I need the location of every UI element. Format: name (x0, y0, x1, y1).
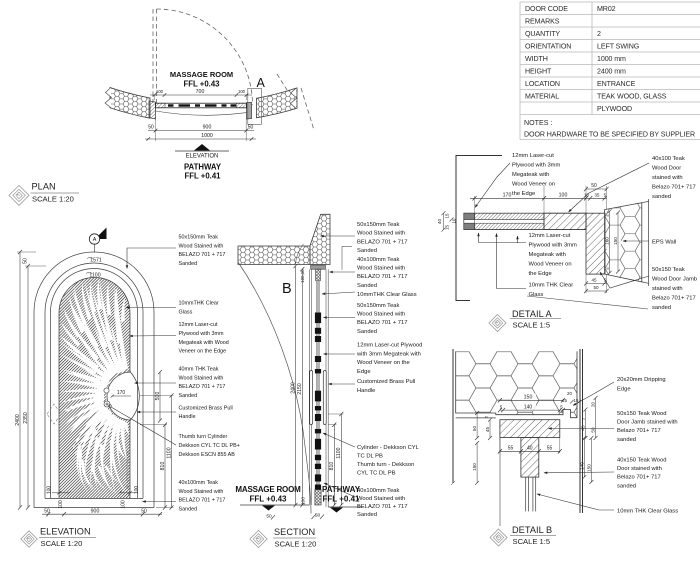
svg-text:1100: 1100 (336, 447, 342, 458)
svg-text:Wood Veneer on: Wood Veneer on (512, 182, 555, 188)
svg-text:2350: 2350 (23, 412, 29, 424)
svg-text:SCALE 1:5: SCALE 1:5 (513, 321, 551, 330)
svg-text:BELAZO 701 + 717: BELAZO 701 + 717 (179, 498, 226, 504)
svg-text:SCALE 1:20: SCALE 1:20 (275, 540, 317, 549)
svg-text:Wood Stained with: Wood Stained with (179, 243, 224, 249)
svg-text:FFL +0.43: FFL +0.43 (183, 80, 220, 89)
svg-text:Dekkson CYL TC DL PB+: Dekkson CYL TC DL PB+ (179, 443, 240, 449)
svg-text:150: 150 (586, 464, 591, 472)
svg-text:BELAZO 701+717 SANDED: BELAZO 701+717 SANDED (125, 450, 129, 489)
svg-text:1100: 1100 (167, 447, 173, 458)
svg-text:REMARKS: REMARKS (525, 18, 560, 26)
svg-text:40x100mm Teak: 40x100mm Teak (357, 488, 400, 494)
svg-text:Belazo 701+ 717: Belazo 701+ 717 (652, 296, 696, 302)
svg-text:10mmTHK Clear Glass: 10mmTHK Clear Glass (357, 292, 417, 298)
svg-text:the Edge: the Edge (529, 271, 552, 277)
svg-text:Wood Veneer on the: Wood Veneer on the (357, 360, 410, 366)
svg-text:Customized Brass Pull: Customized Brass Pull (179, 405, 233, 411)
svg-text:Wood Door Jamb: Wood Door Jamb (652, 277, 697, 283)
svg-text:Sanded: Sanded (357, 283, 377, 289)
svg-text:BELAZO 701 + 717: BELAZO 701 + 717 (357, 320, 407, 326)
svg-text:DOOR CODE: DOOR CODE (525, 5, 568, 13)
svg-text:100: 100 (47, 486, 53, 495)
svg-text:Wood Stained with: Wood Stained with (357, 496, 405, 502)
svg-text:FFL +0.41: FFL +0.41 (184, 172, 221, 181)
svg-text:Megateak with Wood: Megateak with Wood (179, 340, 229, 346)
svg-text:sanded: sanded (652, 194, 671, 200)
svg-text:12mm Laser-cut: 12mm Laser-cut (512, 153, 554, 159)
svg-text:Plywood with 3mm: Plywood with 3mm (529, 243, 577, 249)
svg-text:Cylinder - Dekkson CYL: Cylinder - Dekkson CYL (357, 445, 420, 451)
svg-text:810: 810 (160, 462, 166, 471)
svg-text:40mm THK Teak: 40mm THK Teak (179, 367, 219, 373)
svg-text:500: 500 (155, 392, 161, 401)
svg-text:B: B (282, 281, 292, 297)
svg-text:2: 2 (597, 30, 601, 38)
svg-text:55: 55 (508, 446, 514, 452)
svg-text:Wood Stained with: Wood Stained with (357, 266, 405, 272)
svg-text:40x100mm Teak: 40x100mm Teak (357, 257, 400, 263)
svg-text:Sanded: Sanded (357, 512, 377, 518)
svg-text:900: 900 (91, 508, 100, 514)
svg-text:SCALE 1:5: SCALE 1:5 (513, 537, 551, 546)
svg-text:Sanded: Sanded (179, 261, 198, 267)
svg-text:DETAIL A: DETAIL A (512, 309, 553, 319)
svg-text:with 3mm Megateak with: with 3mm Megateak with (356, 351, 421, 357)
svg-text:MR02: MR02 (597, 5, 616, 13)
svg-text:20x20mm Dripping: 20x20mm Dripping (617, 377, 666, 383)
svg-text:MASSAGE ROOM: MASSAGE ROOM (235, 485, 301, 494)
svg-text:Thumb turn Cylinder: Thumb turn Cylinder (179, 434, 228, 440)
svg-text:170: 170 (503, 193, 512, 199)
svg-text:Veneer on the Edge: Veneer on the Edge (179, 349, 227, 355)
svg-text:150: 150 (613, 237, 618, 245)
svg-text:DETAIL B: DETAIL B (512, 525, 552, 535)
svg-text:BELAZO 701 + 717: BELAZO 701 + 717 (179, 384, 226, 390)
svg-text:ELEVATION: ELEVATION (186, 154, 219, 160)
svg-text:FFL +0.43: FFL +0.43 (250, 495, 288, 504)
svg-text:10mmTHK Clear: 10mmTHK Clear (179, 301, 219, 307)
svg-text:EPS Wall: EPS Wall (652, 240, 676, 246)
svg-text:170: 170 (117, 390, 126, 396)
svg-text:SCALE 1:20: SCALE 1:20 (32, 195, 74, 204)
svg-text:Plywood with 3mm: Plywood with 3mm (179, 331, 224, 337)
svg-text:15: 15 (445, 225, 450, 230)
svg-text:Sanded: Sanded (179, 506, 198, 512)
svg-text:10mm THK Clear Glass: 10mm THK Clear Glass (617, 509, 678, 515)
svg-text:TC DL PB: TC DL PB (357, 454, 383, 460)
svg-text:Belazo 701+ 717: Belazo 701+ 717 (617, 475, 661, 481)
svg-text:Wood Stained with: Wood Stained with (179, 375, 224, 381)
svg-text:Door Jamb stained with: Door Jamb stained with (617, 420, 678, 426)
svg-text:45: 45 (591, 278, 597, 283)
svg-text:PLYWOOD: PLYWOOD (597, 105, 632, 113)
svg-text:BELAZO 701 + 717: BELAZO 701 + 717 (357, 274, 407, 280)
svg-text:ELEVATION: ELEVATION (40, 527, 91, 537)
svg-text:BELAZO 701 + 717: BELAZO 701 + 717 (179, 252, 226, 258)
svg-text:140: 140 (579, 462, 584, 470)
svg-text:100: 100 (58, 500, 64, 509)
svg-text:160: 160 (605, 237, 610, 245)
svg-text:Edge: Edge (617, 387, 631, 393)
svg-text:10mm THK Clear: 10mm THK Clear (529, 283, 574, 289)
svg-text:100: 100 (121, 500, 127, 509)
svg-text:Megateak with: Megateak with (512, 172, 549, 178)
svg-text:PLAN: PLAN (32, 182, 56, 192)
svg-text:A: A (257, 76, 266, 90)
svg-text:12mm Laser-cut: 12mm Laser-cut (529, 233, 571, 239)
svg-text:Wood Stained with: Wood Stained with (357, 312, 405, 318)
svg-text:700: 700 (196, 89, 205, 95)
svg-text:Belazo 701+ 717: Belazo 701+ 717 (652, 185, 696, 191)
svg-text:DOOR HARDWARE TO BE SPECIFIED: DOOR HARDWARE TO BE SPECIFIED BY SUPPLIE… (524, 131, 695, 139)
svg-text:Thumb turn - Dekkson: Thumb turn - Dekkson (357, 462, 414, 468)
svg-text:Door stained with: Door stained with (617, 466, 662, 472)
svg-text:45: 45 (485, 427, 490, 433)
svg-text:50: 50 (266, 514, 272, 520)
svg-text:15: 15 (562, 398, 567, 403)
svg-text:WIDTH: WIDTH (525, 55, 548, 63)
svg-text:900: 900 (203, 125, 212, 131)
svg-text:Handle: Handle (179, 414, 196, 420)
svg-text:100: 100 (156, 89, 164, 94)
svg-text:MASSAGE ROOM: MASSAGE ROOM (170, 70, 233, 79)
svg-text:50: 50 (591, 427, 596, 433)
svg-text:15: 15 (445, 213, 450, 218)
svg-text:BELAZO 701 + 717: BELAZO 701 + 717 (357, 504, 407, 510)
svg-text:1571: 1571 (90, 258, 102, 264)
svg-text:50x150 Teak Wood: 50x150 Teak Wood (617, 411, 666, 417)
svg-text:sanded: sanded (617, 483, 636, 489)
svg-text:LEFT SWING: LEFT SWING (597, 43, 639, 51)
svg-text:ORIENTATION: ORIENTATION (525, 43, 571, 51)
svg-text:50: 50 (248, 125, 254, 131)
svg-text:A: A (93, 237, 97, 243)
svg-text:1000 mm: 1000 mm (597, 55, 626, 63)
svg-text:100: 100 (238, 89, 246, 94)
svg-text:Wood Door: Wood Door (652, 166, 681, 172)
svg-text:ENTRANCE: ENTRANCE (597, 80, 636, 88)
svg-text:stained with: stained with (652, 175, 683, 181)
svg-text:50x150mm Teak: 50x150mm Teak (357, 222, 400, 228)
svg-text:150: 150 (524, 395, 533, 401)
svg-text:50x150mm Teak: 50x150mm Teak (179, 235, 219, 241)
svg-text:40x100 Teak: 40x100 Teak (652, 156, 685, 162)
svg-text:35: 35 (595, 193, 600, 198)
svg-text:150: 150 (472, 463, 477, 471)
svg-text:40: 40 (437, 219, 442, 225)
svg-text:12mm Laser-cut Plywood: 12mm Laser-cut Plywood (357, 343, 422, 349)
svg-text:Handle: Handle (357, 388, 375, 394)
svg-text:50: 50 (148, 125, 154, 131)
svg-text:50: 50 (593, 285, 599, 290)
svg-text:50: 50 (591, 183, 597, 189)
svg-text:2400: 2400 (290, 382, 296, 394)
svg-text:40x100mm Teak: 40x100mm Teak (179, 480, 219, 486)
svg-text:Sanded: Sanded (357, 248, 377, 254)
svg-text:LOCATION: LOCATION (525, 80, 560, 88)
svg-text:NOTES :: NOTES : (524, 119, 552, 127)
svg-text:40: 40 (527, 446, 533, 452)
svg-text:2400: 2400 (15, 414, 21, 426)
svg-text:SECTION: SECTION (274, 527, 315, 537)
svg-text:Megateak with: Megateak with (529, 252, 566, 258)
svg-text:TEAK WOOD, GLASS: TEAK WOOD, GLASS (597, 93, 667, 101)
svg-text:45: 45 (581, 425, 586, 431)
svg-text:HEIGHT: HEIGHT (525, 68, 552, 76)
svg-text:BELAZO 701 + 717: BELAZO 701 + 717 (357, 239, 407, 245)
svg-text:Plywood with 3mm: Plywood with 3mm (512, 163, 560, 169)
svg-text:Wood Veneer on: Wood Veneer on (529, 262, 572, 268)
svg-text:20: 20 (591, 402, 596, 407)
svg-text:stained with: stained with (652, 286, 683, 292)
svg-text:Glass: Glass (529, 292, 544, 298)
svg-text:sanded: sanded (652, 305, 671, 311)
svg-text:Customized Brass Pull: Customized Brass Pull (357, 379, 415, 385)
svg-text:12mm Laser-cut: 12mm Laser-cut (179, 322, 218, 328)
svg-text:2150: 2150 (297, 383, 303, 395)
svg-text:the Edge: the Edge (512, 191, 535, 197)
svg-text:Glass: Glass (179, 309, 193, 315)
svg-text:Dekkson ESCN 855 AB: Dekkson ESCN 855 AB (179, 452, 236, 458)
svg-text:50: 50 (23, 258, 29, 264)
svg-text:sanded: sanded (617, 437, 636, 443)
svg-text:20: 20 (567, 391, 572, 396)
svg-text:Wood Stained with: Wood Stained with (357, 231, 405, 237)
svg-text:140: 140 (524, 404, 533, 410)
svg-text:100: 100 (559, 193, 568, 199)
svg-text:Belazo 701+ 717: Belazo 701+ 717 (617, 428, 661, 434)
svg-text:QUANTITY: QUANTITY (525, 30, 560, 38)
svg-text:50: 50 (141, 508, 147, 514)
svg-text:CYL TC DL PB: CYL TC DL PB (357, 470, 396, 476)
svg-text:50: 50 (472, 426, 477, 432)
svg-text:50: 50 (315, 513, 321, 519)
svg-text:2400 mm: 2400 mm (597, 68, 626, 76)
svg-text:MATERIAL: MATERIAL (525, 93, 559, 101)
svg-text:40x150 Teak Wood: 40x150 Teak Wood (617, 458, 666, 464)
svg-text:50: 50 (44, 508, 50, 514)
svg-text:Sanded: Sanded (357, 329, 377, 335)
svg-text:1000: 1000 (201, 133, 213, 139)
svg-text:Edge: Edge (357, 369, 371, 375)
svg-text:Wood Stained with: Wood Stained with (179, 489, 224, 495)
svg-text:810: 810 (329, 462, 335, 471)
svg-text:Sanded: Sanded (179, 393, 198, 399)
svg-text:PATHWAY: PATHWAY (184, 163, 222, 172)
svg-text:50x150 Teak: 50x150 Teak (652, 267, 685, 273)
svg-text:55: 55 (547, 446, 553, 452)
svg-text:50x150mm Teak: 50x150mm Teak (357, 303, 400, 309)
svg-text:100: 100 (301, 497, 307, 505)
svg-text:SCALE 1:20: SCALE 1:20 (41, 539, 83, 548)
